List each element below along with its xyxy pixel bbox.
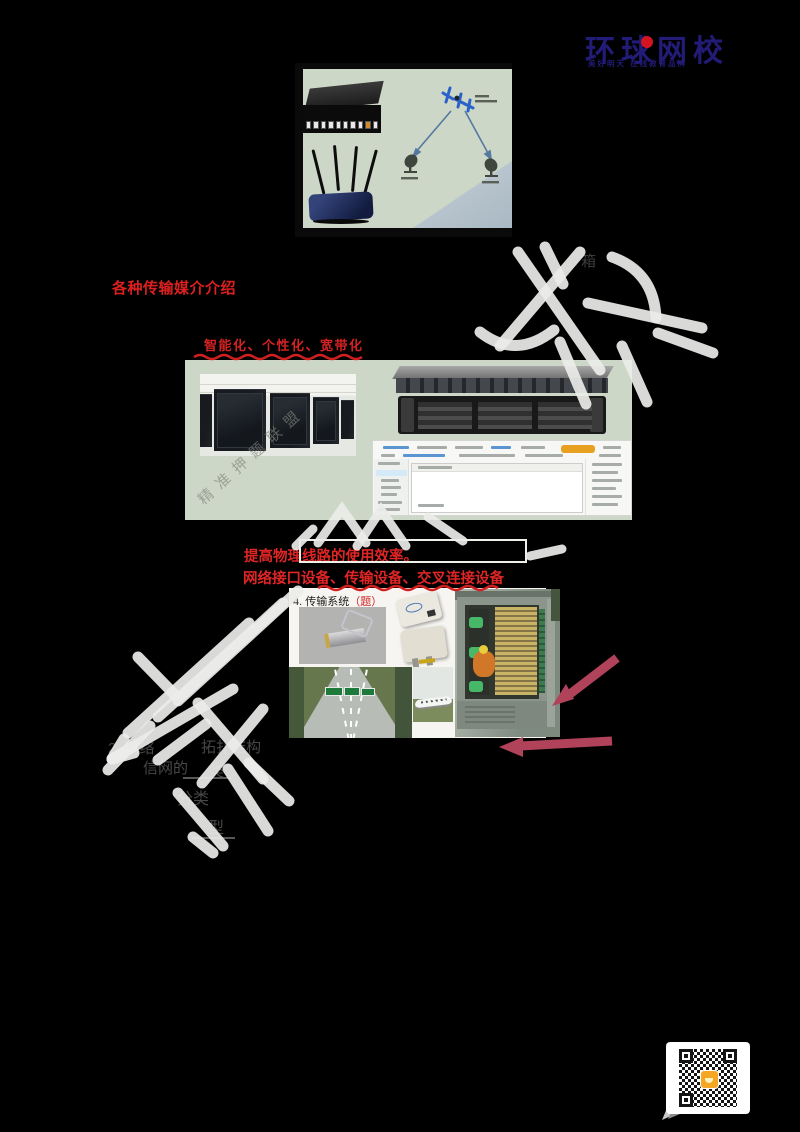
note-underline <box>192 837 235 839</box>
safety-helmet <box>479 645 488 654</box>
green-marker <box>469 681 483 692</box>
wifi-router-photo <box>308 191 373 221</box>
router-antenna <box>351 146 358 192</box>
notes-page: 环球网校 美好明天 在线教育品牌 <box>0 0 800 1132</box>
video-frame-servers: 精准押题联盟 <box>185 360 632 520</box>
optical-module-photo <box>299 607 386 664</box>
ui-main-panel <box>411 463 583 513</box>
ethernet-switch-photo <box>303 105 381 133</box>
frame-bar <box>295 228 512 237</box>
ui-selected-item <box>376 470 407 476</box>
router-antenna <box>333 145 340 191</box>
transmission-collage: 4. 传输系统（题） <box>289 588 560 738</box>
road-sign <box>325 687 343 696</box>
router-antenna <box>311 149 325 194</box>
management-software-screenshot <box>372 440 632 516</box>
qr-center-mascot-icon <box>700 1070 719 1089</box>
frame-bar <box>295 63 512 69</box>
server-rack <box>313 397 339 444</box>
road-sign <box>344 687 360 696</box>
highway-photo <box>289 667 412 738</box>
qr-code <box>666 1042 750 1114</box>
ui-right-column <box>585 459 632 515</box>
devices-line: 网络接口设备、传输设备、交叉连接设备 <box>243 567 504 588</box>
ui-sidebar <box>374 459 409 515</box>
note-fragment: 型 <box>208 814 224 838</box>
rack-server-2u-photo <box>398 396 606 434</box>
note-fragment: 拓扑结构 <box>201 736 261 757</box>
server-rack <box>200 394 212 447</box>
router-antenna <box>363 149 378 194</box>
technician-figure <box>473 651 495 677</box>
note-fragment: 信网的 <box>143 757 188 778</box>
note-underline <box>183 777 231 779</box>
onu-device-photo-2 <box>400 625 448 663</box>
media-heading: 各种传输媒介介绍 <box>112 277 236 298</box>
uplink-port <box>365 121 370 129</box>
video-frame-network-devices <box>295 63 512 237</box>
logo-red-dot-icon <box>641 36 653 48</box>
fiber-cabinet-photo <box>455 589 560 737</box>
green-marker <box>469 617 483 628</box>
rack-server-1u-photo <box>396 366 610 394</box>
ui-primary-button <box>561 445 595 453</box>
annotation-char: 箱 <box>581 250 596 271</box>
road-sign <box>361 688 375 696</box>
trend-line: 智能化、个性化、宽带化 <box>204 335 364 354</box>
satellite-link-diagram <box>395 81 509 221</box>
high-speed-train <box>415 696 453 710</box>
train-photo <box>413 667 453 722</box>
frame-bar <box>295 63 303 237</box>
server-rack <box>341 400 354 439</box>
fiber-splice-trays <box>495 607 537 695</box>
note-fragment: 分类 <box>177 785 209 809</box>
note-fragment: 2. 网络 <box>108 737 155 758</box>
highlight-box <box>299 539 527 563</box>
router-shadow <box>313 219 369 224</box>
brand-tagline: 美好明天 在线教育品牌 <box>588 58 687 69</box>
